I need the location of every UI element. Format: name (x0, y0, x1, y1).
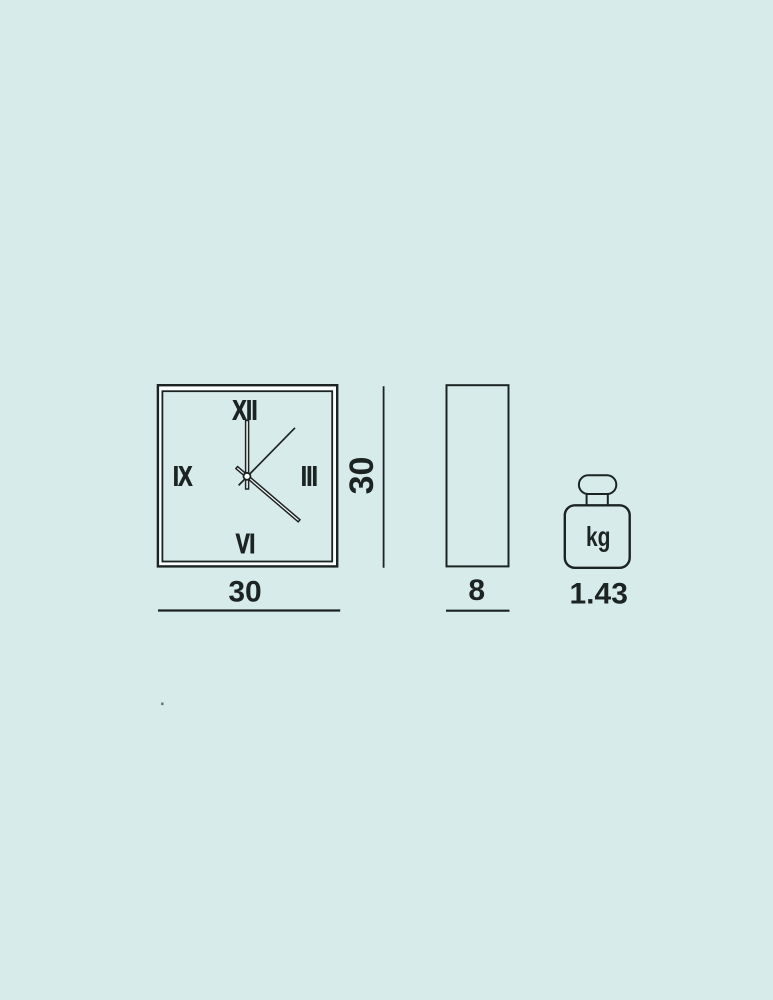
svg-text:1.43: 1.43 (570, 577, 628, 610)
svg-text:kg: kg (586, 522, 611, 553)
svg-text:VI: VI (236, 529, 255, 560)
svg-text:30: 30 (228, 575, 261, 608)
svg-text:30: 30 (343, 457, 381, 495)
svg-text:XII: XII (233, 396, 258, 427)
svg-text:8: 8 (468, 574, 485, 607)
svg-text:III: III (301, 462, 317, 493)
svg-text:IX: IX (173, 462, 193, 493)
